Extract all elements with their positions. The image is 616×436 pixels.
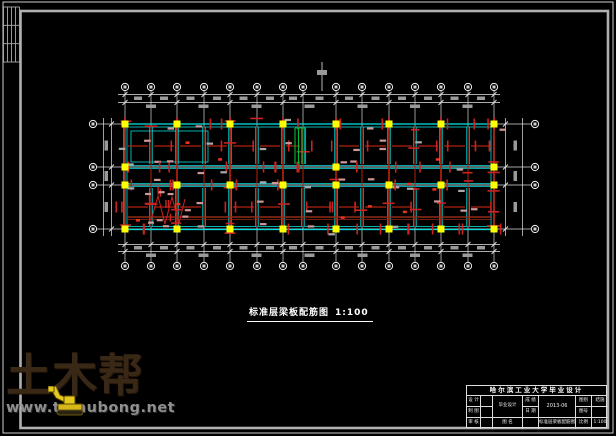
watermark-brand-text: 土木帮 xyxy=(6,350,176,402)
project-cell: 毕业设计 xyxy=(493,396,523,418)
role-design-label: 设 计 xyxy=(467,396,481,407)
drawing-caption: 标准层梁板配筋图1:100 xyxy=(247,305,373,322)
sheet-no-value xyxy=(592,407,608,418)
caption-title: 标准层梁板配筋图 xyxy=(249,308,329,318)
sheet-type-label: 图别 xyxy=(576,396,592,407)
excavator-icon xyxy=(48,386,88,418)
empty-cell xyxy=(523,418,539,429)
scale-value: 1:100 xyxy=(592,418,608,429)
role-check-sign xyxy=(481,418,493,429)
drawing-name-label: 图 名 xyxy=(493,418,523,429)
sheet-type-value: 结施 xyxy=(592,396,608,407)
watermark: 土木帮 www.tumubong.net xyxy=(6,350,176,416)
drawing-sheet: 标准层梁板配筋图1:100 土木帮 www.tumubong.net 哈尔滨工业… xyxy=(0,0,616,436)
sheet-no-label: 图号 xyxy=(576,407,592,418)
date-value: 2013-06 xyxy=(539,396,576,418)
role-draft-sign xyxy=(481,407,493,418)
title-block: 哈尔滨工业大学毕业设计 设 计 制 图 审 核 毕业设计 图 名 成 绩 日 期… xyxy=(466,385,607,428)
caption-scale: 1:100 xyxy=(335,308,369,318)
grade-label: 成 绩 xyxy=(523,396,539,407)
title-block-header: 哈尔滨工业大学毕业设计 xyxy=(467,386,606,396)
date-label: 日 期 xyxy=(523,407,539,418)
role-design-sign xyxy=(481,396,493,407)
scale-label: 比例 xyxy=(576,418,592,429)
drawing-name-value: 标准层梁板配筋图 xyxy=(539,418,576,429)
role-check-label: 审 核 xyxy=(467,418,481,429)
watermark-url-text: www.tumubong.net xyxy=(6,400,176,416)
role-draft-label: 制 图 xyxy=(467,407,481,418)
